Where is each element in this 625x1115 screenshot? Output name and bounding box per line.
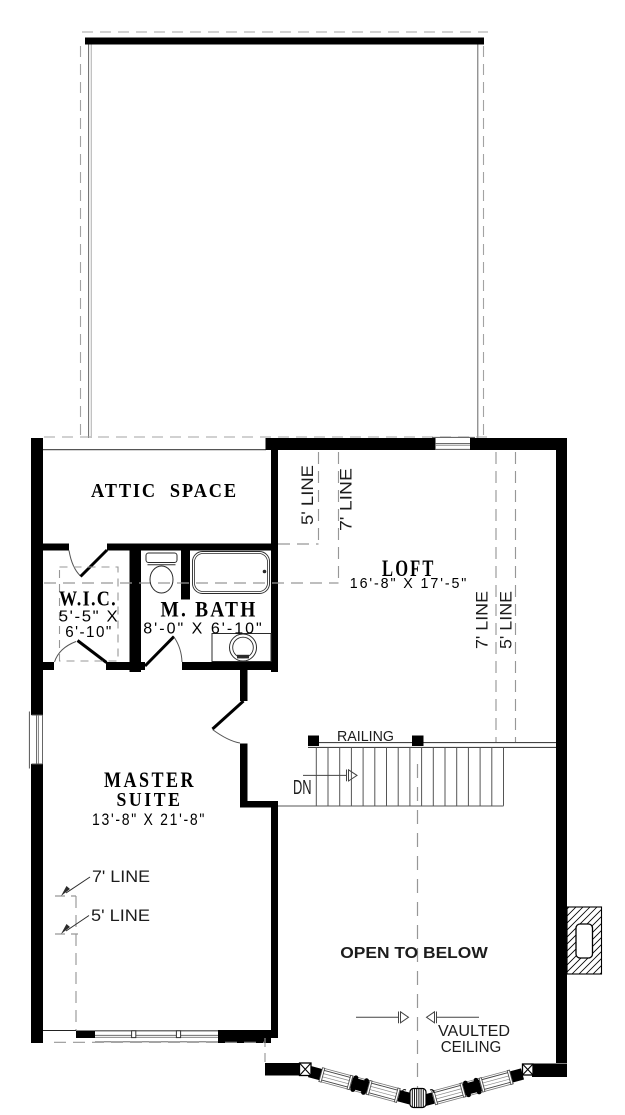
svg-text:ATTIC SPACE: ATTIC SPACE: [91, 481, 238, 502]
svg-text:5' LINE: 5' LINE: [91, 906, 150, 925]
svg-text:5' LINE: 5' LINE: [496, 591, 515, 649]
svg-text:W.I.C.: W.I.C.: [59, 587, 117, 611]
svg-text:DN: DN: [293, 777, 312, 799]
svg-text:OPEN TO BELOW: OPEN TO BELOW: [340, 945, 488, 962]
svg-text:5' LINE: 5' LINE: [298, 465, 317, 525]
svg-text:7' LINE: 7' LINE: [473, 591, 492, 649]
svg-text:7' LINE: 7' LINE: [92, 867, 150, 886]
svg-text:VAULTED: VAULTED: [438, 1023, 510, 1040]
svg-text:5'-5" X: 5'-5" X: [59, 609, 120, 626]
svg-text:M. BATH: M. BATH: [161, 596, 258, 621]
svg-text:7' LINE: 7' LINE: [336, 468, 355, 531]
svg-text:6'-10": 6'-10": [65, 624, 113, 641]
svg-text:SUITE: SUITE: [117, 789, 183, 811]
svg-text:13'-8" X 21'-8": 13'-8" X 21'-8": [92, 811, 206, 829]
svg-text:RAILING: RAILING: [337, 729, 394, 745]
svg-text:16'-8" X 17'-5": 16'-8" X 17'-5": [350, 575, 469, 592]
svg-text:CEILING: CEILING: [441, 1039, 502, 1056]
svg-text:8'-0" X 6'-10": 8'-0" X 6'-10": [143, 620, 264, 637]
